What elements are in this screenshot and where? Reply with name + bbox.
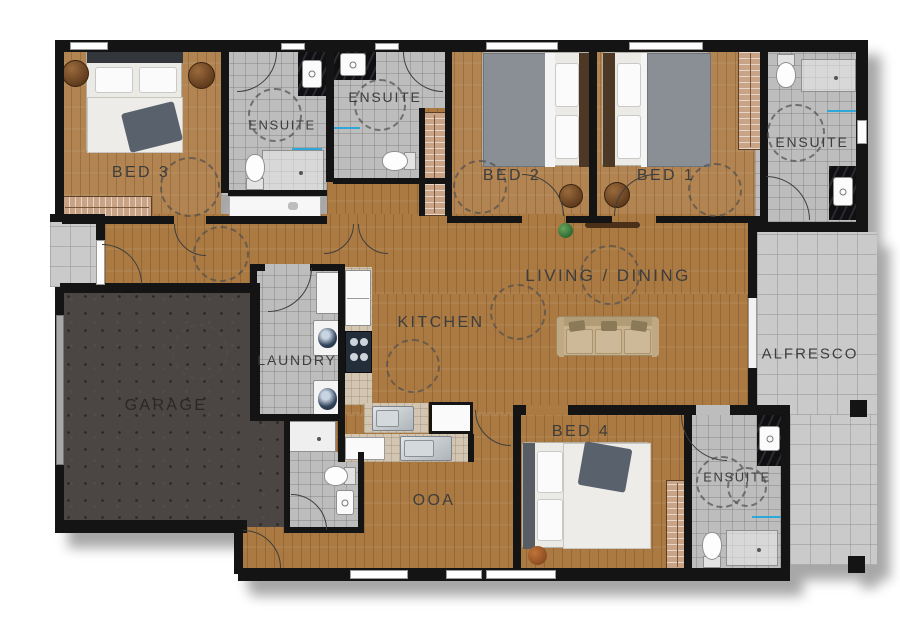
wall-bed4-left (513, 412, 521, 570)
ensuite3-shower (262, 150, 324, 192)
ensuite1-shower (801, 59, 856, 92)
wall-laundry-bottom (250, 414, 345, 421)
window-ooa-b (446, 570, 482, 579)
wall-band-bed1-a (592, 216, 612, 223)
ensuite1-sink (833, 177, 853, 206)
wall-bed2-bed1 (589, 48, 597, 216)
wall-entry-left (234, 527, 243, 574)
circle-living-b (490, 284, 546, 340)
bed3-pillow-right (139, 67, 177, 93)
bed3-pillow-left (95, 67, 133, 93)
bed1-duvet (647, 53, 711, 167)
wall-robe-nook (419, 108, 425, 216)
bed2-sheet (545, 53, 555, 167)
bed1-bed (602, 52, 710, 166)
wall-band-bed3-b (206, 216, 327, 224)
circle-kitchen (386, 339, 440, 393)
ensuite1-towel-rail (827, 110, 857, 112)
circle-garage (172, 324, 228, 380)
ensuite2-toilet (382, 150, 416, 172)
alfresco-floor-lower (790, 415, 877, 565)
fridge (345, 270, 371, 326)
sofa-pillow-2 (601, 321, 617, 331)
plant (558, 223, 573, 238)
ooa-sink (400, 436, 452, 461)
wall-band-bed3-a (62, 216, 174, 224)
circle-ensuite3 (248, 88, 302, 142)
label-bed3: BED 3 (112, 164, 170, 182)
circle-ensuite2 (354, 79, 406, 131)
bed3-headboard (87, 51, 183, 63)
label-laundry: LAUNDRY (257, 352, 336, 368)
living-glass-doors (748, 298, 757, 368)
bed4-throw (578, 441, 633, 493)
wall-ensuite2-bottom (333, 178, 446, 184)
bed4-bed (522, 442, 650, 548)
label-living-dining: LIVING / DINING (525, 266, 690, 286)
sofa-cushion-2 (595, 329, 622, 354)
label-ensuite-bed2: ENSUITE (348, 89, 421, 105)
bed2-pillow-top (555, 63, 579, 107)
bed4-headboard (523, 443, 535, 549)
label-ooa: OOA (413, 492, 456, 510)
wall-living-right-a (748, 222, 757, 298)
bed4-pillow-top (537, 451, 563, 493)
bed1-pillow-top (617, 63, 641, 107)
window-bed3 (70, 42, 108, 50)
window-ensuite1-niche (857, 120, 867, 144)
floor-plan: BED 3 ENSUITE ENSUITE BED 2 BED 1 ENSUIT… (0, 0, 900, 625)
sofa-cushion-3 (624, 329, 651, 354)
wall-ensuite3-ensuite2 (326, 48, 334, 182)
garage-panel-door (56, 315, 64, 465)
bed1-headboard (603, 53, 615, 167)
wall-ensuite1-alfresco (751, 222, 868, 232)
label-alfresco: ALFRESCO (762, 346, 859, 363)
bed4-pillow-bottom (537, 499, 563, 541)
label-bed1: BED 1 (637, 167, 695, 185)
window-ooa-a (350, 570, 408, 579)
ensuite3-towel-rail (292, 148, 322, 150)
wall-band-bed2-a (447, 216, 522, 223)
sofa-arm-right (652, 317, 659, 357)
window-bed2 (486, 42, 558, 50)
label-ensuite-bed3: ENSUITE (248, 118, 316, 133)
bed1-wardrobe (738, 50, 762, 150)
porch-floor (50, 222, 97, 287)
wall-top (55, 40, 868, 52)
bed2-pillow-bottom (555, 115, 579, 159)
label-ensuite-bed4: ENSUITE (703, 470, 771, 485)
sofa (556, 316, 658, 356)
wall-garage-bottom (55, 520, 247, 533)
sofa-cushion-1 (566, 329, 593, 354)
ensuite4-toilet (701, 532, 723, 568)
label-garage: GARAGE (125, 397, 208, 415)
wall-bed3-ensuite (221, 48, 229, 193)
ensuite3-sink (302, 60, 322, 88)
bed2-bed (482, 52, 590, 166)
wall-band-bed2-b (566, 216, 592, 223)
bed3-side-table-right (188, 62, 215, 89)
circle-bed1 (688, 163, 742, 217)
ooa-bench-cabinet (345, 437, 385, 460)
bath-tub (229, 196, 321, 218)
window-ensuite3 (281, 43, 305, 50)
wall-powder-left (284, 420, 290, 532)
wall-left-upper (55, 40, 64, 222)
bed4-door-opening (526, 405, 568, 415)
powder-shower (288, 421, 336, 452)
bed1-pillow-bottom (617, 115, 641, 159)
bath-tap (288, 202, 298, 210)
ensuite4-towel-rail (752, 516, 782, 518)
wall-bath-top (228, 190, 327, 196)
bed3-bed (86, 50, 182, 152)
ensuite2-sink (340, 53, 366, 76)
bed3-side-table-left (62, 60, 89, 87)
window-bed4 (486, 570, 556, 579)
garage-floor-nib (252, 414, 286, 527)
alfresco-post-top (850, 400, 867, 417)
ensuite1-toilet (775, 54, 797, 88)
wall-powder-right (358, 452, 364, 533)
sofa-arm-left (557, 317, 564, 357)
powder-sink (336, 490, 354, 515)
floor-plan-canvas: BED 3 ENSUITE ENSUITE BED 2 BED 1 ENSUIT… (0, 0, 900, 625)
basketball (528, 546, 547, 565)
dishwasher (429, 402, 473, 434)
ensuite3-toilet (244, 154, 266, 190)
ensuite4-shower (726, 530, 778, 566)
ensuite2-towel-rail (332, 127, 360, 129)
label-bed4: BED 4 (552, 423, 610, 441)
sofa-pillow-3 (630, 320, 647, 332)
bed2-duvet (483, 53, 549, 167)
wall-band-bed1-b (656, 216, 762, 223)
cooktop (345, 331, 372, 373)
label-kitchen: KITCHEN (397, 314, 484, 332)
wall-bed2-left (445, 48, 452, 216)
wall-laundry-right (338, 271, 345, 462)
window-bed1 (629, 42, 703, 50)
bench-end-wall (468, 434, 474, 462)
wall-garage-top (60, 283, 260, 293)
window-ensuite2 (375, 43, 399, 50)
ensuite4-sink (759, 426, 780, 451)
label-ensuite-bed1: ENSUITE (775, 134, 848, 150)
circle-ensuite1 (767, 104, 825, 162)
kitchen-sink (372, 406, 414, 431)
alfresco-post-bottom (848, 556, 865, 573)
powder-toilet (324, 465, 356, 487)
alfresco-floor-upper (757, 232, 877, 415)
wall-ensuite4-right (781, 412, 790, 572)
ensuite4-door-opening (696, 405, 730, 415)
label-bed2: BED 2 (483, 167, 541, 185)
wall-laundry-top-b (310, 264, 345, 271)
